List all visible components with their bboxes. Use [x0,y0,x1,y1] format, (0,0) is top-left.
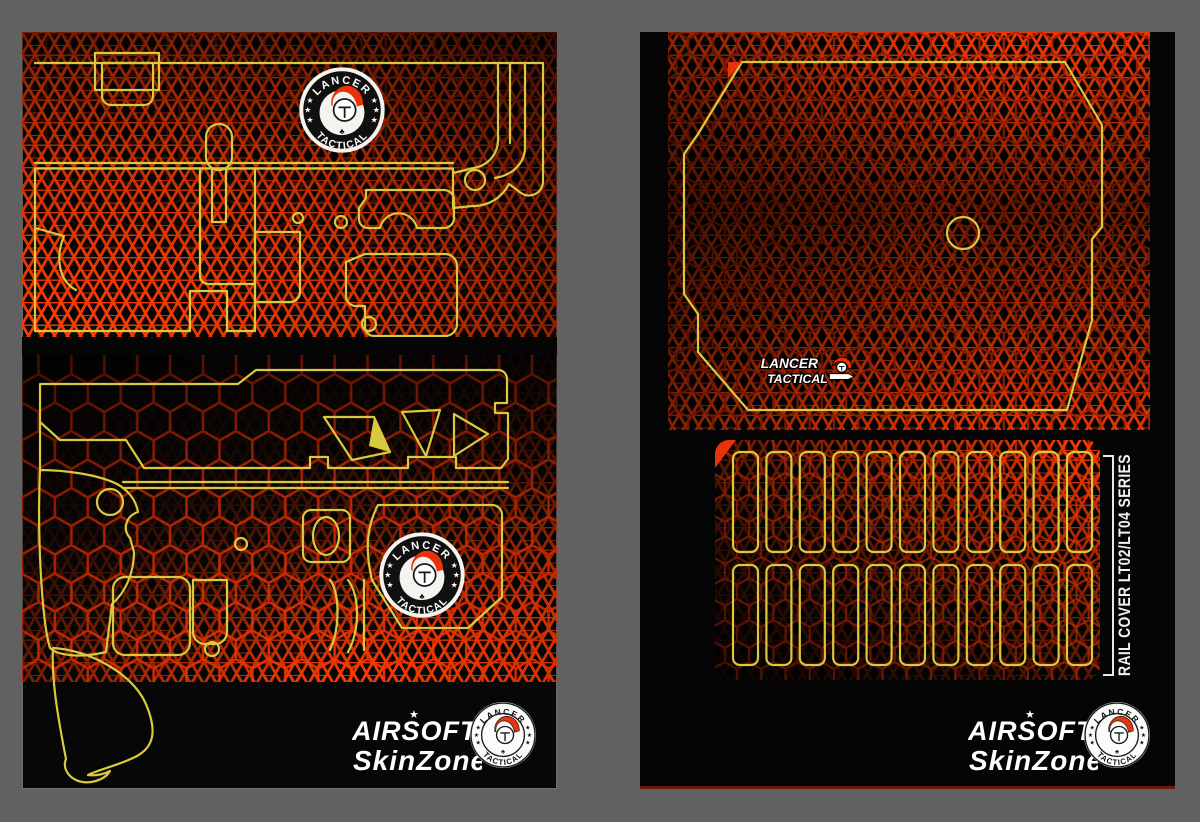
lancer-tactical-badge-icon [1084,702,1150,768]
airsoft-skinzone-logo [967,709,1103,776]
lancer-tactical-badge-icon [379,532,464,617]
rail-cover-series-label: RAIL COVER LT02/LT04 SERIES [1116,454,1134,676]
receiver-skin-sheet [22,32,557,789]
airsoft-skinzone-logo [351,709,487,776]
canvas: LANCER TACTICAL ★★★ ★★★ ♣ LANCER TACTICA… [0,0,1200,822]
upper-receiver-section [22,32,557,337]
receiver-wrap-section [668,32,1150,430]
sheet-bottom-border [640,786,1175,789]
section-divider [22,337,557,355]
lancer-tactical-badge-icon [299,67,384,152]
lancer-tactical-badge-icon [470,702,536,768]
rail-cover-skin-sheet: RAIL COVER LT02/LT04 SERIES [640,32,1175,789]
lower-receiver-section [22,355,557,682]
rail-cover-section: RAIL COVER LT02/LT04 SERIES [715,440,1134,680]
